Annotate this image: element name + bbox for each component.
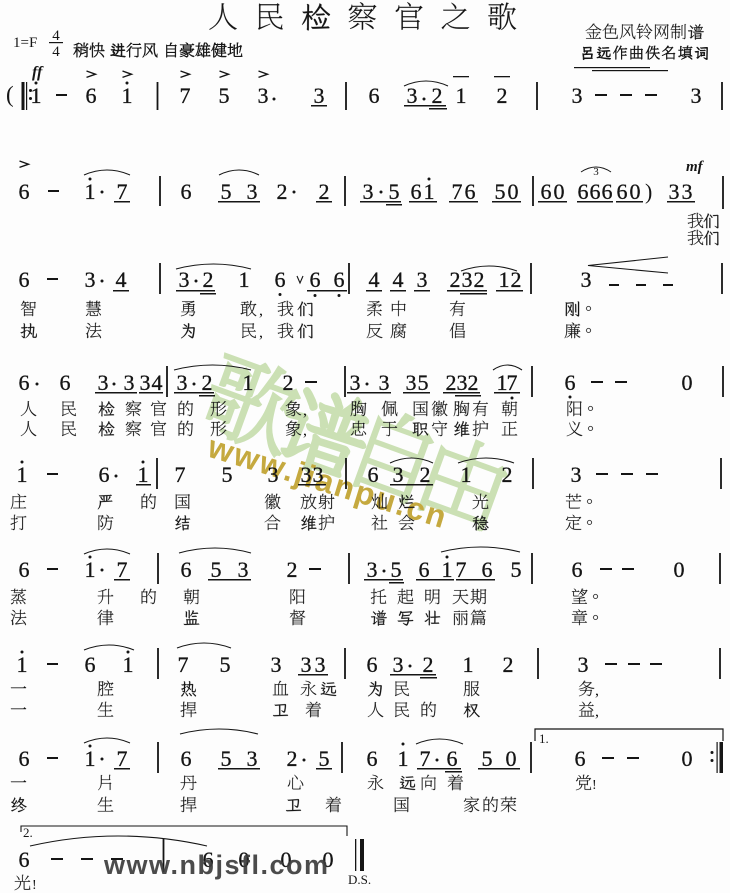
- svg-text:5: 5: [418, 370, 429, 395]
- svg-text:2: 2: [287, 557, 298, 582]
- svg-text:7: 7: [117, 557, 128, 582]
- svg-text:2: 2: [203, 267, 214, 292]
- svg-text:4: 4: [52, 44, 60, 60]
- svg-text:3: 3: [406, 370, 417, 395]
- svg-text:4: 4: [369, 267, 380, 292]
- svg-text:3: 3: [238, 557, 249, 582]
- svg-text:2: 2: [420, 462, 431, 487]
- svg-text:2: 2: [277, 179, 288, 204]
- svg-text:1: 1: [138, 462, 149, 487]
- svg-text:7: 7: [117, 179, 128, 204]
- svg-text:6: 6: [447, 746, 458, 771]
- svg-text:5: 5: [221, 746, 232, 771]
- svg-text:6: 6: [578, 179, 589, 204]
- svg-text:3: 3: [669, 179, 680, 204]
- svg-text:1: 1: [243, 370, 254, 395]
- svg-text:5: 5: [482, 746, 493, 771]
- svg-text:3: 3: [177, 370, 188, 395]
- svg-text:,: ,: [259, 324, 263, 341]
- svg-text:3: 3: [571, 462, 582, 487]
- svg-text:3: 3: [682, 179, 693, 204]
- svg-text:2: 2: [319, 179, 330, 204]
- svg-text:0: 0: [508, 179, 519, 204]
- svg-text:3: 3: [247, 179, 258, 204]
- svg-text:): ): [645, 179, 652, 204]
- svg-text:6: 6: [419, 557, 430, 582]
- svg-text:6: 6: [85, 652, 96, 677]
- svg-text:5: 5: [495, 179, 506, 204]
- svg-text:6: 6: [575, 746, 586, 771]
- svg-text:6: 6: [565, 370, 576, 395]
- svg-text:2: 2: [202, 370, 213, 395]
- svg-text:1: 1: [122, 83, 133, 108]
- svg-text:0: 0: [506, 746, 517, 771]
- svg-text:6: 6: [181, 179, 192, 204]
- svg-text:,: ,: [303, 402, 307, 419]
- svg-text:ff: ff: [32, 64, 44, 81]
- svg-text:3: 3: [350, 370, 361, 395]
- svg-text:3: 3: [407, 83, 418, 108]
- svg-text:5: 5: [391, 557, 402, 582]
- svg-text:6: 6: [541, 179, 552, 204]
- svg-text:mf: mf: [686, 159, 705, 175]
- svg-text:2: 2: [502, 462, 513, 487]
- svg-text:6: 6: [19, 179, 30, 204]
- svg-text:2: 2: [446, 370, 457, 395]
- svg-text:6: 6: [275, 267, 286, 292]
- svg-text:5: 5: [211, 557, 222, 582]
- svg-text:6: 6: [367, 746, 378, 771]
- svg-text:1: 1: [17, 462, 28, 487]
- svg-text:3: 3: [313, 462, 324, 487]
- svg-text:5: 5: [389, 179, 400, 204]
- svg-text:3: 3: [593, 166, 599, 178]
- svg-text:2: 2: [497, 83, 508, 108]
- svg-text:3: 3: [379, 370, 390, 395]
- svg-text:6: 6: [86, 83, 97, 108]
- svg-text:1: 1: [456, 83, 467, 108]
- svg-text:1: 1: [424, 179, 435, 204]
- svg-text:1: 1: [85, 746, 96, 771]
- svg-text:4: 4: [116, 267, 127, 292]
- svg-text:6: 6: [411, 179, 422, 204]
- svg-text:!: !: [32, 878, 37, 893]
- svg-text:3: 3: [572, 83, 583, 108]
- svg-text:2: 2: [287, 746, 298, 771]
- svg-text:5: 5: [319, 746, 330, 771]
- svg-text:3: 3: [578, 652, 589, 677]
- svg-text:6: 6: [368, 462, 379, 487]
- svg-text:0: 0: [682, 370, 693, 395]
- svg-text:4: 4: [152, 370, 163, 395]
- svg-text:1: 1: [463, 652, 474, 677]
- svg-text:7: 7: [507, 370, 518, 395]
- svg-text:6: 6: [19, 746, 30, 771]
- svg-text:www.nbjsfl.com: www.nbjsfl.com: [103, 850, 330, 880]
- svg-text:0: 0: [674, 557, 685, 582]
- svg-text:2: 2: [450, 267, 461, 292]
- svg-text:3: 3: [367, 557, 378, 582]
- svg-text:2: 2: [468, 370, 479, 395]
- svg-text:6: 6: [334, 267, 345, 292]
- svg-text:5: 5: [222, 462, 233, 487]
- svg-text:3: 3: [140, 370, 151, 395]
- svg-text:7: 7: [452, 179, 463, 204]
- svg-text:3: 3: [179, 267, 190, 292]
- svg-text:1: 1: [31, 83, 42, 108]
- svg-text:3: 3: [258, 83, 269, 108]
- svg-text:1: 1: [398, 746, 409, 771]
- svg-text:3: 3: [301, 652, 312, 677]
- svg-text:2.: 2.: [23, 825, 33, 840]
- svg-text:1: 1: [123, 652, 134, 677]
- svg-text:6: 6: [369, 83, 380, 108]
- svg-text:6: 6: [181, 557, 192, 582]
- svg-text:2: 2: [432, 83, 443, 108]
- svg-text:5: 5: [219, 83, 230, 108]
- svg-text:7: 7: [420, 746, 431, 771]
- svg-text:0: 0: [554, 179, 565, 204]
- svg-text:4: 4: [52, 28, 60, 44]
- svg-text:3: 3: [301, 462, 312, 487]
- svg-text:2: 2: [503, 652, 514, 677]
- svg-text:,: ,: [259, 302, 263, 319]
- svg-text:,: ,: [595, 703, 599, 720]
- svg-text:6: 6: [602, 179, 613, 204]
- svg-text:6: 6: [19, 847, 30, 872]
- svg-text:6: 6: [19, 557, 30, 582]
- svg-text:3: 3: [457, 370, 468, 395]
- svg-text:1: 1: [499, 267, 510, 292]
- svg-text:,: ,: [595, 682, 599, 699]
- svg-text:3: 3: [315, 652, 326, 677]
- svg-text:!: !: [592, 778, 597, 793]
- svg-text:6: 6: [367, 652, 378, 677]
- svg-text:7: 7: [178, 652, 189, 677]
- svg-text:6: 6: [60, 370, 71, 395]
- svg-text:1.: 1.: [539, 731, 549, 746]
- svg-text:7: 7: [175, 462, 186, 487]
- svg-text:6: 6: [590, 179, 601, 204]
- svg-text:1: 1: [85, 557, 96, 582]
- svg-text:2: 2: [283, 370, 294, 395]
- svg-text:3: 3: [314, 83, 325, 108]
- svg-text:1: 1: [239, 267, 250, 292]
- svg-text:6: 6: [19, 267, 30, 292]
- svg-text:3: 3: [581, 267, 592, 292]
- svg-text:2: 2: [474, 267, 485, 292]
- svg-text:3: 3: [393, 652, 404, 677]
- svg-text:1: 1: [85, 179, 96, 204]
- svg-text:4: 4: [393, 267, 404, 292]
- svg-text:6: 6: [465, 179, 476, 204]
- svg-text:3: 3: [98, 370, 109, 395]
- svg-text:,: ,: [303, 422, 307, 439]
- svg-text:6: 6: [310, 267, 321, 292]
- svg-text:6: 6: [19, 370, 30, 395]
- svg-text:1: 1: [461, 462, 472, 487]
- svg-text:3: 3: [417, 267, 428, 292]
- svg-text:0: 0: [682, 746, 693, 771]
- svg-text:3: 3: [691, 83, 702, 108]
- svg-text:1=F: 1=F: [13, 35, 37, 51]
- svg-text:3: 3: [393, 462, 404, 487]
- svg-text:7: 7: [456, 557, 467, 582]
- svg-text:5: 5: [221, 179, 232, 204]
- svg-text:3: 3: [271, 652, 282, 677]
- svg-text:3: 3: [268, 462, 279, 487]
- svg-text:(: (: [6, 82, 14, 107]
- svg-text:7: 7: [117, 746, 128, 771]
- svg-text:5: 5: [511, 557, 522, 582]
- svg-text:5: 5: [220, 652, 231, 677]
- svg-text:6: 6: [617, 179, 628, 204]
- svg-text:6: 6: [482, 557, 493, 582]
- svg-text:3: 3: [247, 746, 258, 771]
- svg-text:6: 6: [99, 462, 110, 487]
- svg-text:D.S.: D.S.: [348, 872, 371, 887]
- svg-text:3: 3: [124, 370, 135, 395]
- svg-text:3: 3: [85, 267, 96, 292]
- svg-text:6: 6: [572, 557, 583, 582]
- svg-text:0: 0: [630, 179, 641, 204]
- svg-text:1: 1: [442, 557, 453, 582]
- svg-text:1: 1: [17, 652, 28, 677]
- svg-text:3: 3: [363, 179, 374, 204]
- svg-text:6: 6: [181, 746, 192, 771]
- svg-text:7: 7: [180, 83, 191, 108]
- svg-text:2: 2: [423, 652, 434, 677]
